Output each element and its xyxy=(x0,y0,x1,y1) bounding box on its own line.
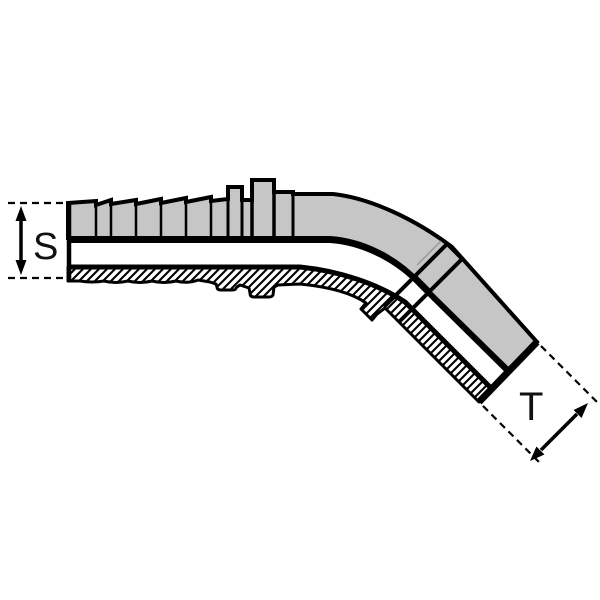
s-arrowhead-bottom xyxy=(16,260,27,275)
t-arrow xyxy=(541,414,577,450)
dimension-s: S xyxy=(8,203,64,278)
fitting-diagram-svg: S T xyxy=(0,0,600,600)
fitting-diagram: S T xyxy=(0,0,600,600)
s-label: S xyxy=(33,226,58,268)
t-label: T xyxy=(519,385,543,429)
s-arrowhead-top xyxy=(16,206,27,221)
t-extension-line-upper xyxy=(541,346,598,403)
